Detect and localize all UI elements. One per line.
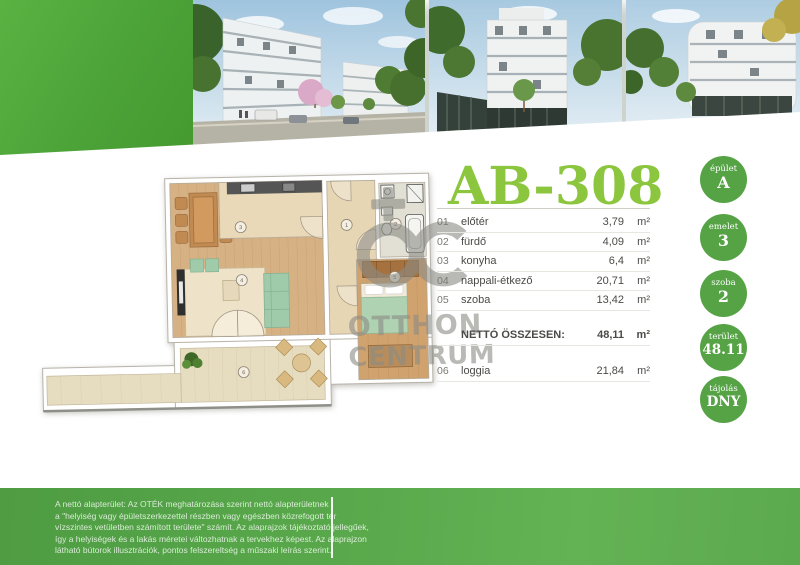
badge-szoba: szoba 2: [700, 270, 747, 317]
svg-text:6: 6: [242, 370, 245, 376]
room-area-table: 01 előtér 3,79 m² 02 fürdő 4,09 m² 03 ko…: [437, 208, 650, 382]
disclaimer-text: A nettó alapterület: Az OTÉK meghatározá…: [55, 499, 369, 557]
table-total-row: NETTÓ ÖSSZESEN: 48,11 m²: [437, 325, 650, 346]
table-row: 02 fürdő 4,09 m²: [437, 233, 650, 253]
green-wedge: [0, 0, 193, 158]
floor-plan: 1 2 3 4 5 6 OTTHON CENTRUM: [30, 164, 465, 418]
svg-text:1: 1: [345, 223, 348, 229]
table-row: 04 nappali-étkező 20,71 m²: [437, 272, 650, 292]
project-render-photo-3: [626, 0, 800, 158]
sofa: [264, 273, 290, 328]
footer-divider: [331, 497, 333, 558]
badge-tajolas: tájolás DNY: [700, 376, 747, 423]
badge-terulet: terület 48.11: [700, 324, 747, 371]
svg-text:3: 3: [239, 225, 242, 231]
apartment-datasheet-page: AB-308: [0, 0, 800, 565]
table-row: 01 előtér 3,79 m²: [437, 213, 650, 233]
project-render-photo-2: [429, 0, 622, 158]
table-row: 03 konyha 6,4 m²: [437, 252, 650, 272]
badge-epulet: épület A: [700, 156, 747, 203]
footer-disclaimer: A nettó alapterület: Az OTÉK meghatározá…: [0, 488, 800, 565]
badge-emelet: emelet 3: [700, 214, 747, 261]
svg-text:4: 4: [240, 278, 243, 284]
table-row: 06 loggia 21,84 m²: [437, 362, 650, 382]
table-row: 05 szoba 13,42 m²: [437, 291, 650, 311]
project-render-photo-1: [193, 0, 425, 158]
top-banner: [0, 0, 800, 158]
